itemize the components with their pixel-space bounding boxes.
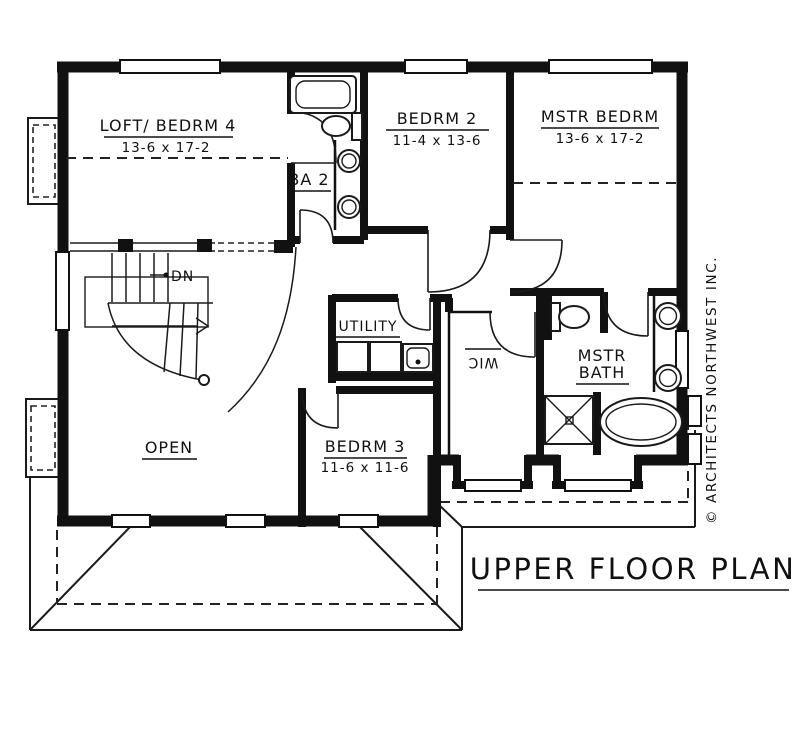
loft-bedrm4-dims: 13-6 x 17-2 — [122, 140, 211, 156]
room-label-wic: WIC — [465, 349, 501, 370]
garden-tub-icon — [600, 398, 682, 446]
bathtub-icon — [290, 76, 356, 113]
washer-icon — [337, 342, 368, 372]
floor-plan-drawing: DN — [0, 0, 800, 730]
west-chimney-lower — [26, 399, 62, 477]
loft-bedrm4-name: LOFT/ BEDRM 4 — [100, 116, 237, 135]
bedrm3-name: BEDRM 3 — [325, 437, 406, 456]
mstr-bath-name-2: BATH — [579, 363, 625, 382]
room-label-bedrm3: BEDRM 3 11-6 x 11-6 — [321, 437, 410, 476]
staircase: DN — [70, 239, 296, 412]
toilet-icon — [551, 303, 589, 331]
room-label-utility: UTILITY — [336, 319, 400, 337]
copyright-text: © ARCHITECTS NORTHWEST INC. — [704, 256, 720, 524]
room-label-mstr-bedrm: MSTR BEDRM 13-6 x 17-2 — [541, 107, 659, 147]
sink-icon — [655, 303, 681, 329]
utility-fixtures — [337, 342, 433, 372]
bedrm3-dims: 11-6 x 11-6 — [321, 460, 410, 476]
ba2-name: BA 2 — [288, 170, 329, 189]
plan-title-text: UPPER FLOOR PLAN — [470, 552, 797, 586]
sink-icon — [338, 150, 360, 172]
ba2-fixtures — [290, 76, 362, 218]
ceiling-break-lines — [66, 158, 680, 183]
room-label-ba2: BA 2 — [288, 170, 331, 191]
bedrm2-dims: 11-4 x 13-6 — [393, 133, 482, 149]
floor-plan-page: DN — [0, 0, 800, 730]
room-label-mstr-bath: MSTR BATH — [576, 346, 629, 384]
mstr-bedrm-name: MSTR BEDRM — [541, 107, 659, 126]
room-label-loft-bedrm4: LOFT/ BEDRM 4 13-6 x 17-2 — [100, 116, 237, 156]
utility-name: UTILITY — [339, 319, 398, 335]
shower-icon — [545, 396, 593, 444]
laundry-sink-icon — [403, 344, 433, 372]
room-label-bedrm2: BEDRM 2 11-4 x 13-6 — [386, 109, 489, 149]
drawing-title: UPPER FLOOR PLAN — [470, 552, 797, 590]
dryer-icon — [370, 342, 401, 372]
bedrm2-name: BEDRM 2 — [397, 109, 478, 128]
sink-icon — [655, 365, 681, 391]
west-chimney-upper — [28, 118, 62, 204]
wic-name: WIC — [468, 354, 499, 370]
sink-icon — [338, 196, 360, 218]
open-name: OPEN — [145, 438, 193, 457]
toilet-icon — [322, 113, 362, 140]
porch-roof-outline — [30, 478, 462, 630]
mstr-bedrm-dims: 13-6 x 17-2 — [556, 131, 645, 147]
stairs-down-label: DN — [171, 269, 194, 285]
room-label-open: OPEN — [142, 438, 197, 459]
